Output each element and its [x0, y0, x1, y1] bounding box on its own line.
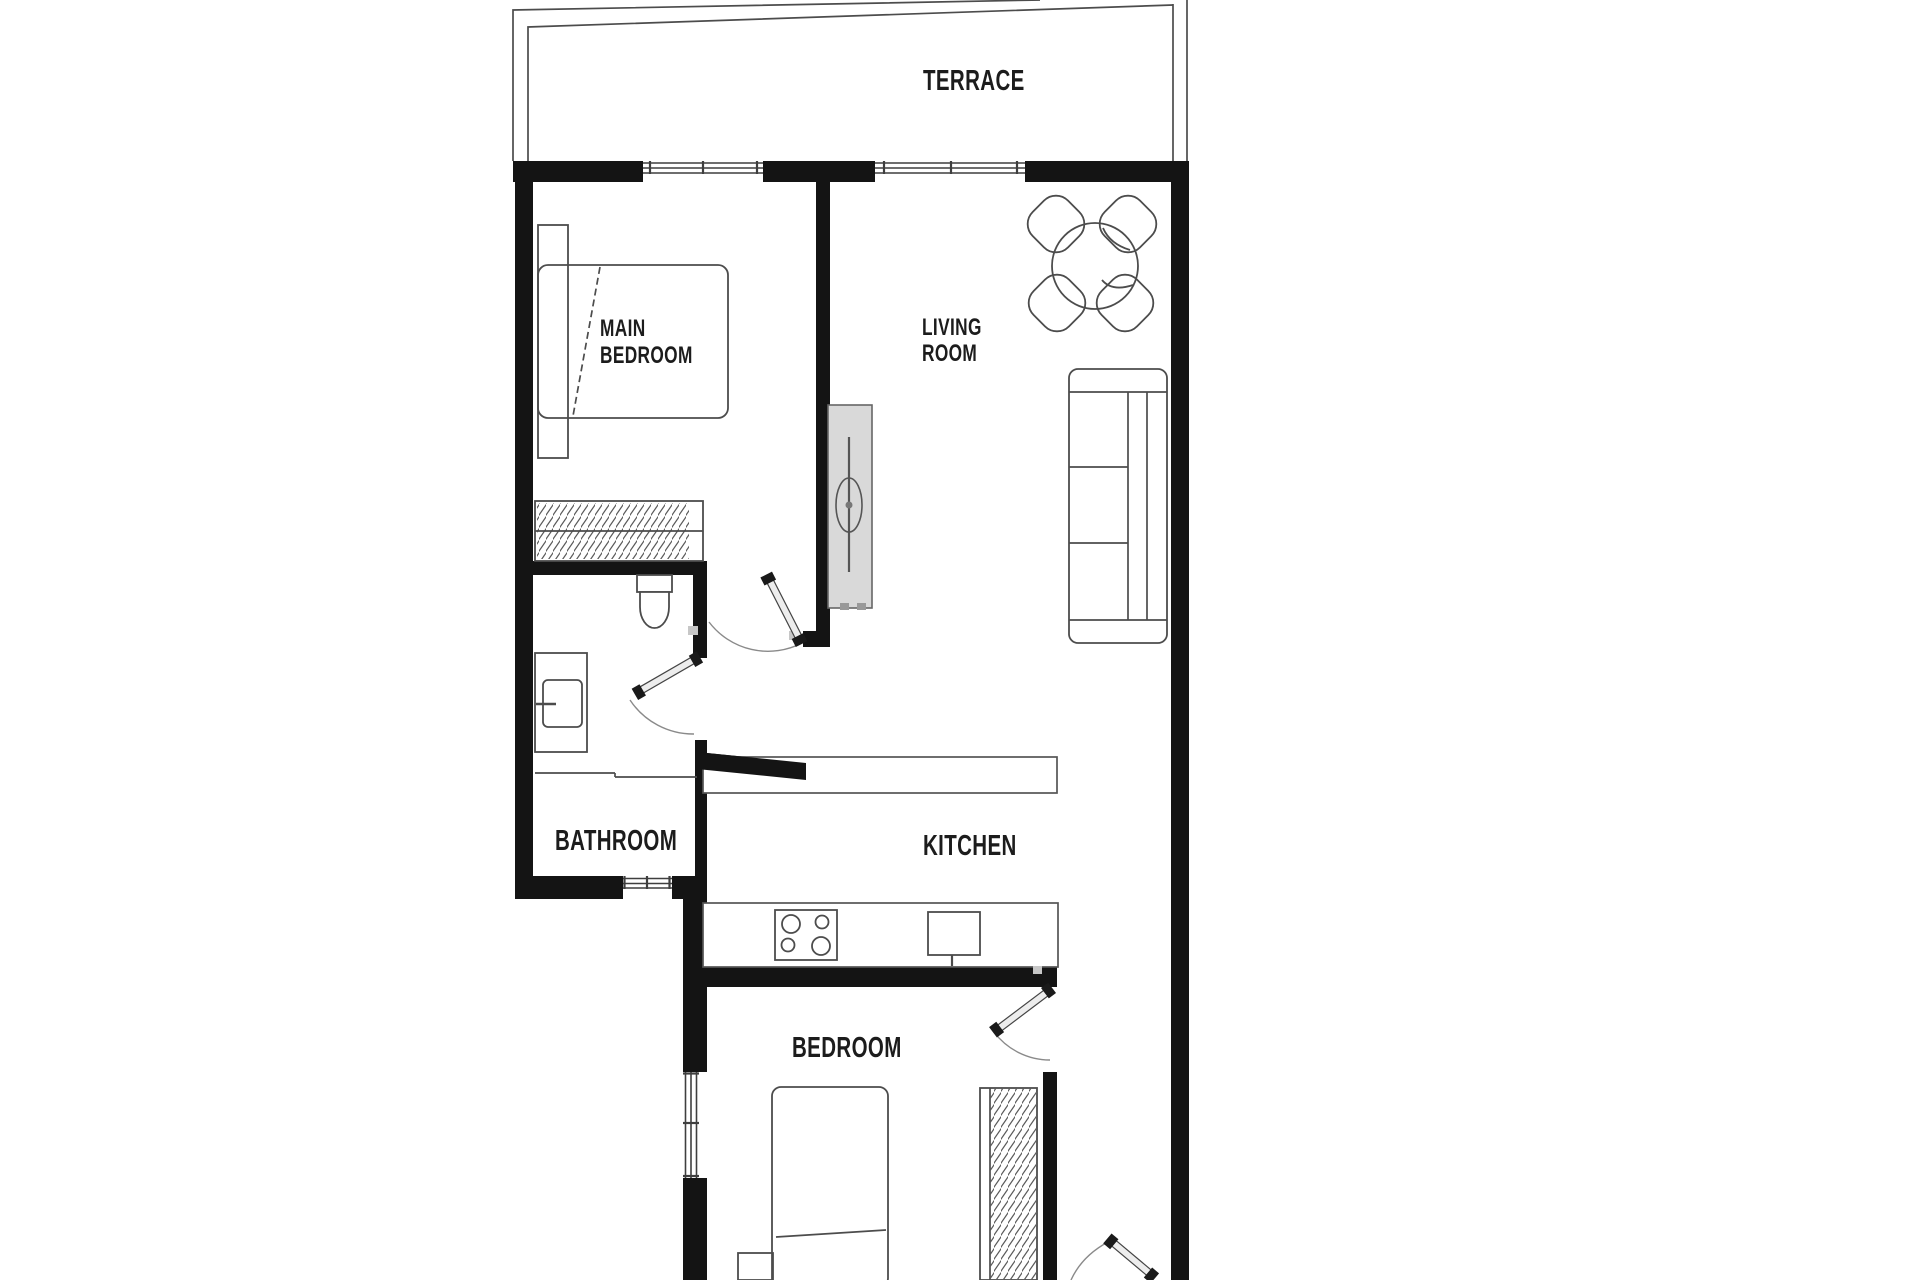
wall-divider-stub	[803, 631, 830, 647]
toilet-tank	[637, 575, 672, 592]
bedroom-label: BEDROOM	[792, 1033, 902, 1064]
door-swing-arc	[994, 1032, 1050, 1060]
wall-bathroom-bottom-right	[672, 876, 707, 899]
dining-set	[1021, 189, 1164, 339]
sink-vanity	[535, 653, 587, 752]
dining-chair	[1090, 268, 1161, 339]
sofa-outline	[1069, 369, 1167, 643]
bathroom: BATHROOM	[535, 575, 697, 857]
door-leaf	[765, 575, 805, 644]
wardrobe-main-bedroom	[535, 501, 703, 561]
wall-bathroom-right-upper	[693, 561, 707, 658]
door-leaf-group	[760, 572, 807, 647]
wall-top-right	[1025, 161, 1189, 182]
wall-mainbedroom-bottom	[515, 561, 703, 575]
door-leaf-group	[1103, 1233, 1159, 1280]
shower-area	[535, 773, 697, 777]
window-main-bedroom-terrace	[643, 161, 763, 174]
toilet-bowl	[640, 592, 669, 628]
main-bedroom-door	[709, 572, 807, 652]
main-bedroom-label-line1: MAIN	[600, 315, 646, 341]
door-leaf-group	[632, 651, 703, 700]
entrance-door-partial	[1071, 1233, 1159, 1280]
wall-right	[1171, 182, 1189, 1280]
bedroom: BEDROOM	[738, 966, 1159, 1280]
door-jamb-mark	[1033, 966, 1042, 974]
dining-table	[1052, 223, 1138, 309]
dining-chair	[1022, 268, 1093, 339]
terrace-label: TERRACE	[923, 66, 1025, 97]
wall-kitchen-bedroom	[700, 966, 1057, 987]
door-leaf-group	[989, 983, 1056, 1038]
door-leaf	[992, 987, 1052, 1035]
living-room-label-line1: LIVING	[922, 314, 982, 340]
wall-left	[515, 161, 533, 878]
kitchen-label: KITCHEN	[923, 831, 1017, 862]
tv-unit-detail-dot	[846, 502, 853, 509]
kitchen-counter-lower	[703, 903, 1058, 967]
sofa	[1069, 369, 1167, 643]
wardrobe-bedroom	[980, 1088, 1037, 1280]
wall-bathroom-bottom-left	[515, 876, 623, 899]
main-bedroom: MAIN BEDROOM	[535, 225, 728, 561]
living-room-label-line2: ROOM	[922, 340, 977, 366]
terrace-inner-boundary	[528, 5, 1173, 161]
door-swing-arc	[709, 622, 802, 651]
floor-plan-page: TERRACE	[0, 0, 1920, 1280]
single-bed	[772, 1087, 888, 1280]
window-living-room-terrace	[875, 161, 1025, 174]
main-bedroom-label-line2: BEDROOM	[600, 342, 693, 368]
door-leaf	[635, 655, 699, 696]
wall-top-pillar	[763, 161, 875, 182]
nightstand	[738, 1253, 773, 1280]
terrace: TERRACE	[513, 0, 1187, 161]
kitchen: KITCHEN	[697, 752, 1058, 967]
bathroom-door	[630, 651, 703, 734]
door-swing-arc	[630, 700, 694, 734]
tv-unit	[828, 405, 872, 610]
living-room: LIVING ROOM	[828, 189, 1167, 643]
wall-exterior-left-low	[683, 1178, 707, 1280]
wardrobe-hatch	[990, 1088, 1037, 1280]
bathroom-label: BATHROOM	[555, 826, 677, 857]
toilet	[637, 575, 672, 628]
window-bedroom	[683, 1072, 699, 1178]
window-bathroom	[623, 876, 672, 889]
door-jamb-mark	[688, 626, 698, 635]
floor-plan-image: TERRACE	[0, 0, 1920, 1280]
tv-unit-foot	[840, 603, 849, 610]
tv-unit-foot	[857, 603, 866, 610]
wall-bedroom-right	[1043, 1072, 1057, 1280]
stove	[775, 910, 837, 960]
door-swing-arc	[1071, 1242, 1108, 1280]
